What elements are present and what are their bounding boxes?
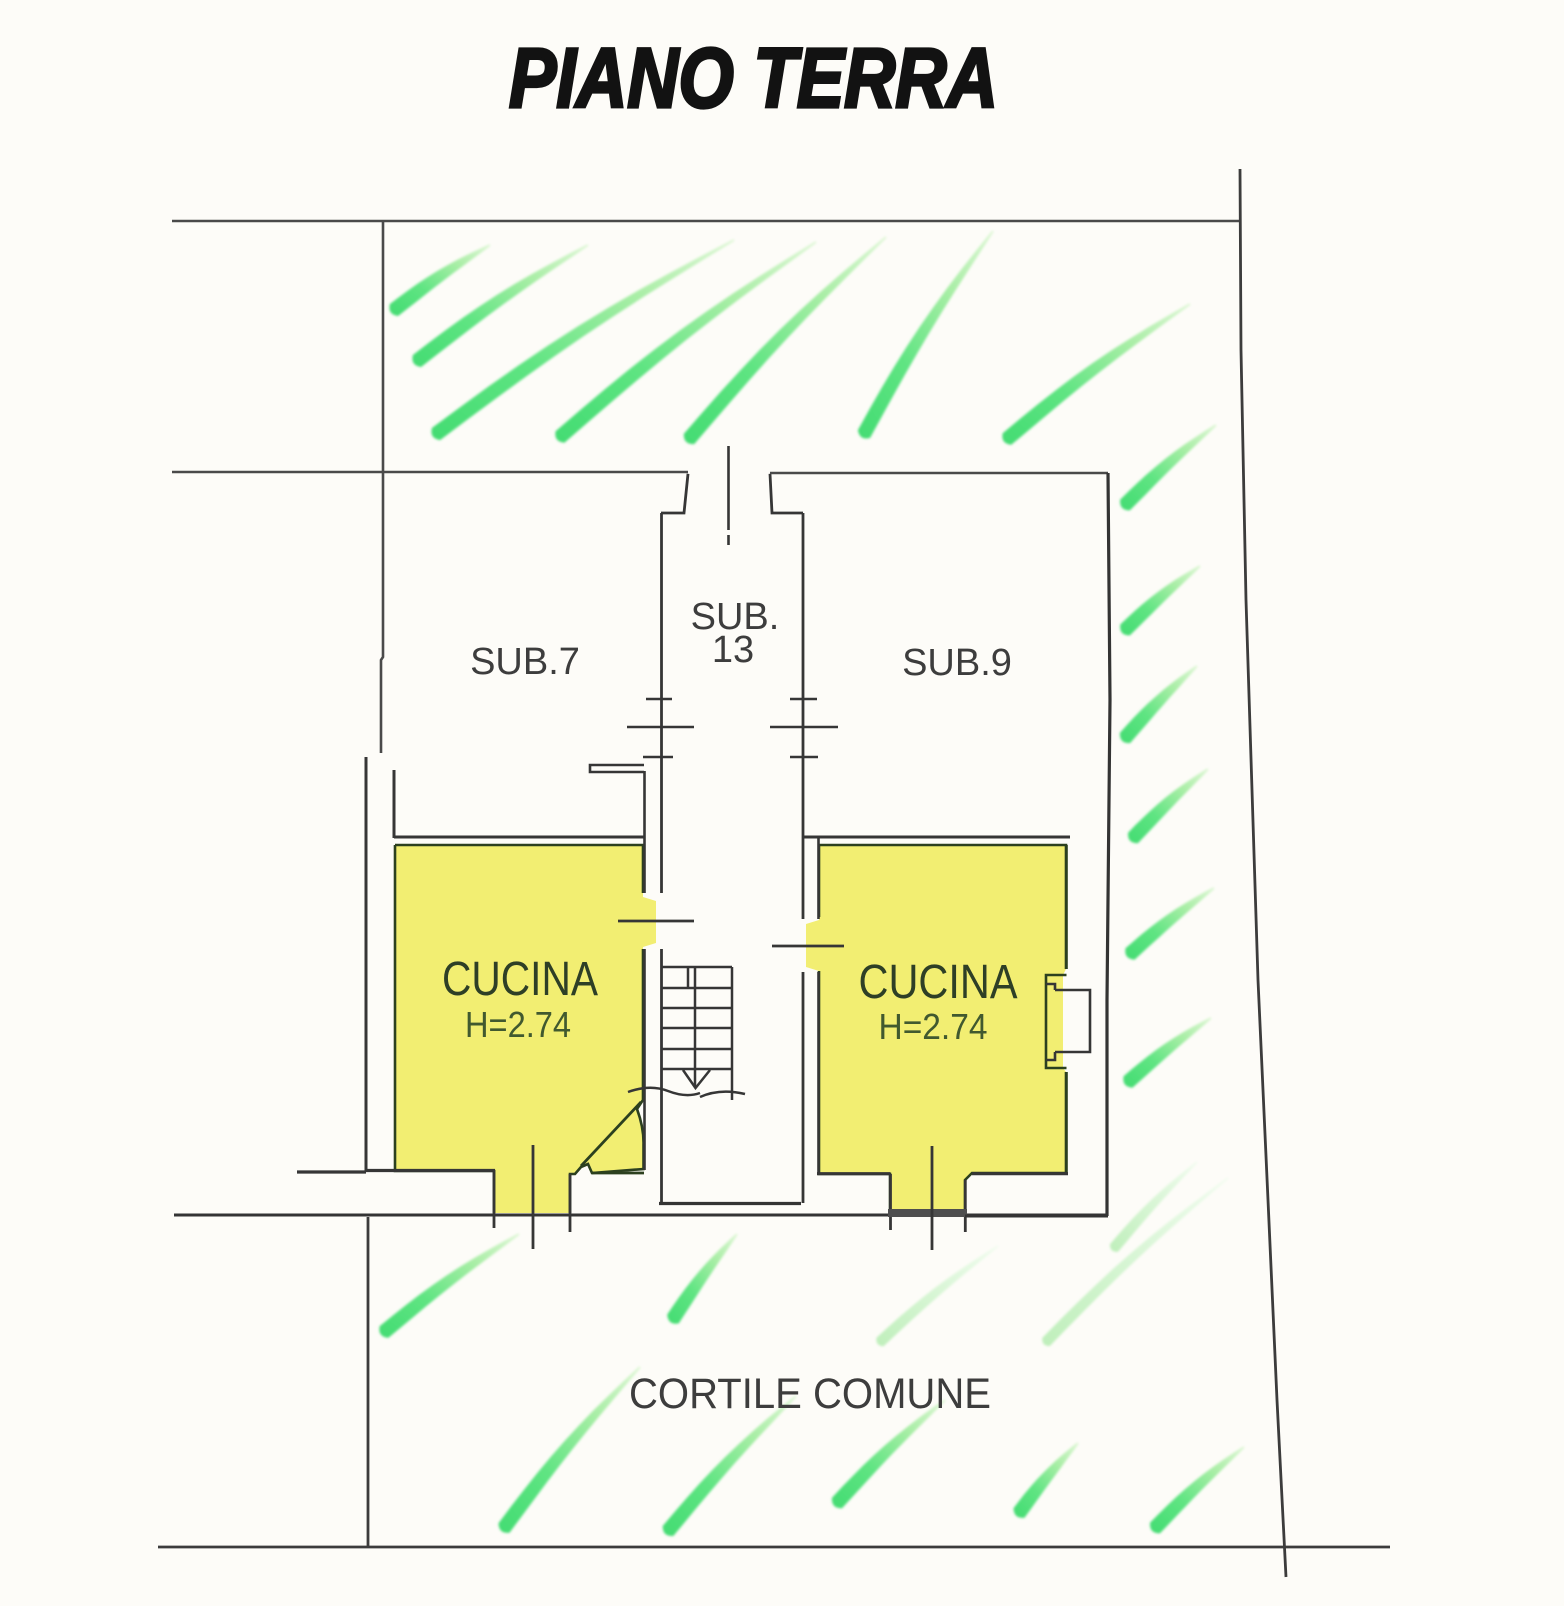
svg-text:SUB.9: SUB.9 [902, 642, 1012, 684]
svg-text:H=2.74: H=2.74 [465, 1004, 571, 1045]
svg-text:CUCINA: CUCINA [442, 953, 598, 1006]
svg-text:CUCINA: CUCINA [859, 956, 1018, 1009]
svg-text:SUB.7: SUB.7 [470, 641, 580, 683]
svg-text:PIANO TERRA: PIANO TERRA [509, 32, 998, 125]
svg-text:H=2.74: H=2.74 [879, 1006, 988, 1047]
svg-text:CORTILE COMUNE: CORTILE COMUNE [629, 1370, 991, 1418]
svg-text:13: 13 [712, 629, 754, 671]
